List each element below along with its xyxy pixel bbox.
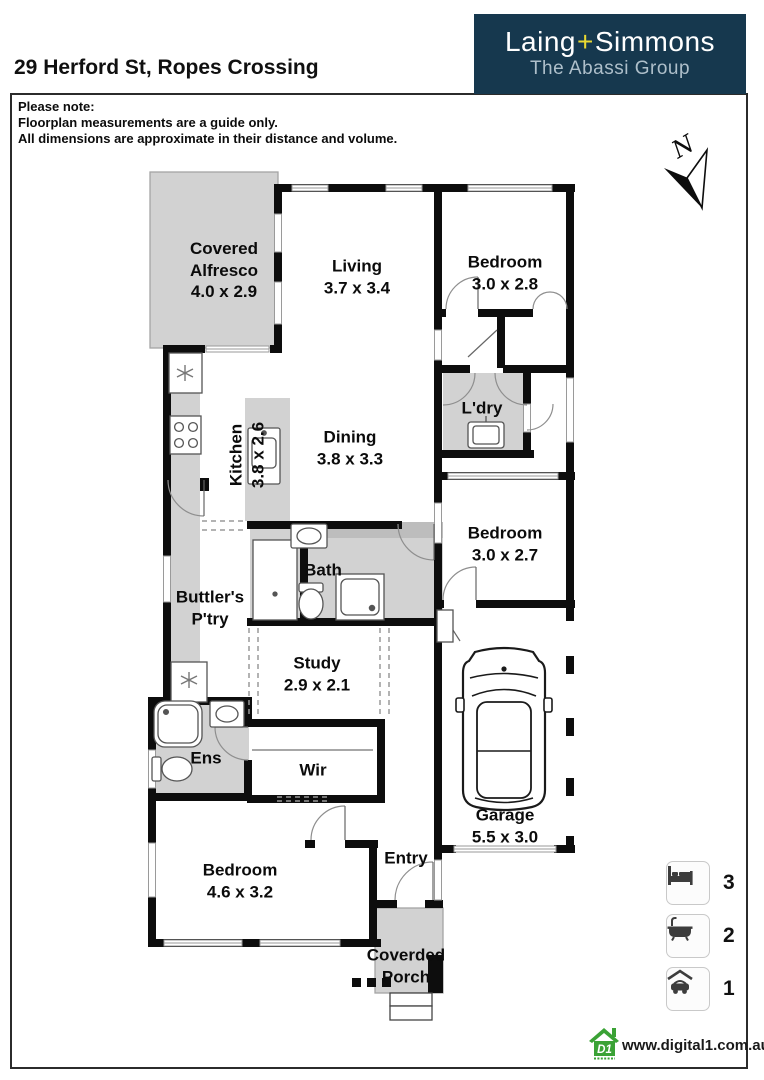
room-label-butlers: Buttler's P'try bbox=[164, 587, 256, 630]
room-label-bath: Bath bbox=[304, 559, 342, 581]
bed-icon bbox=[666, 861, 710, 905]
room-label-garage: Garage 5.5 x 3.0 bbox=[472, 805, 538, 848]
digital1-logo: D1 bbox=[585, 1022, 623, 1064]
room-label-dining: Dining 3.8 x 3.3 bbox=[317, 427, 383, 470]
car-icon bbox=[456, 648, 552, 810]
room-label-living: Living 3.7 x 3.4 bbox=[324, 256, 390, 299]
website-link: www.digital1.com.au bbox=[622, 1037, 764, 1054]
room-label-alfresco: Covered Alfresco 4.0 x 2.9 bbox=[174, 238, 274, 303]
room-label-entry: Entry bbox=[384, 847, 427, 869]
linen-cabinet bbox=[253, 540, 297, 620]
ens-toilet-icon bbox=[152, 757, 161, 781]
bathroom-count: 2 bbox=[723, 924, 735, 948]
floorplan-drawing bbox=[0, 0, 764, 1080]
room-label-porch: Coverded Porch bbox=[356, 945, 456, 988]
legend-bedrooms: 3 bbox=[666, 862, 756, 904]
room-label-kitchen: Kitchen 3.8 x 2.6 bbox=[226, 422, 269, 488]
legend-cars: 1 bbox=[666, 968, 756, 1010]
room-label-wir: Wir bbox=[299, 759, 326, 781]
room-label-bedroom2: Bedroom 3.0 x 2.7 bbox=[468, 523, 543, 566]
porch-steps bbox=[390, 993, 432, 1006]
car-count: 1 bbox=[723, 977, 735, 1001]
garage-store bbox=[437, 610, 453, 642]
car-garage-icon bbox=[666, 967, 710, 1011]
room-label-bedroom1: Bedroom 3.0 x 2.8 bbox=[468, 252, 543, 295]
floorplan-page: 29 Herford St, Ropes Crossing Laing+Simm… bbox=[0, 0, 764, 1080]
room-label-ens: Ens bbox=[190, 747, 221, 769]
digital1-logo-text: D1 bbox=[597, 1044, 612, 1056]
room-label-study: Study 2.9 x 2.1 bbox=[284, 653, 350, 696]
room-label-laundry: L'dry bbox=[462, 397, 503, 419]
room-label-bedroom3: Bedroom 4.6 x 3.2 bbox=[203, 860, 278, 903]
legend-bathrooms: 2 bbox=[666, 915, 756, 957]
bedroom-count: 3 bbox=[723, 871, 735, 895]
bath-icon bbox=[666, 914, 710, 958]
